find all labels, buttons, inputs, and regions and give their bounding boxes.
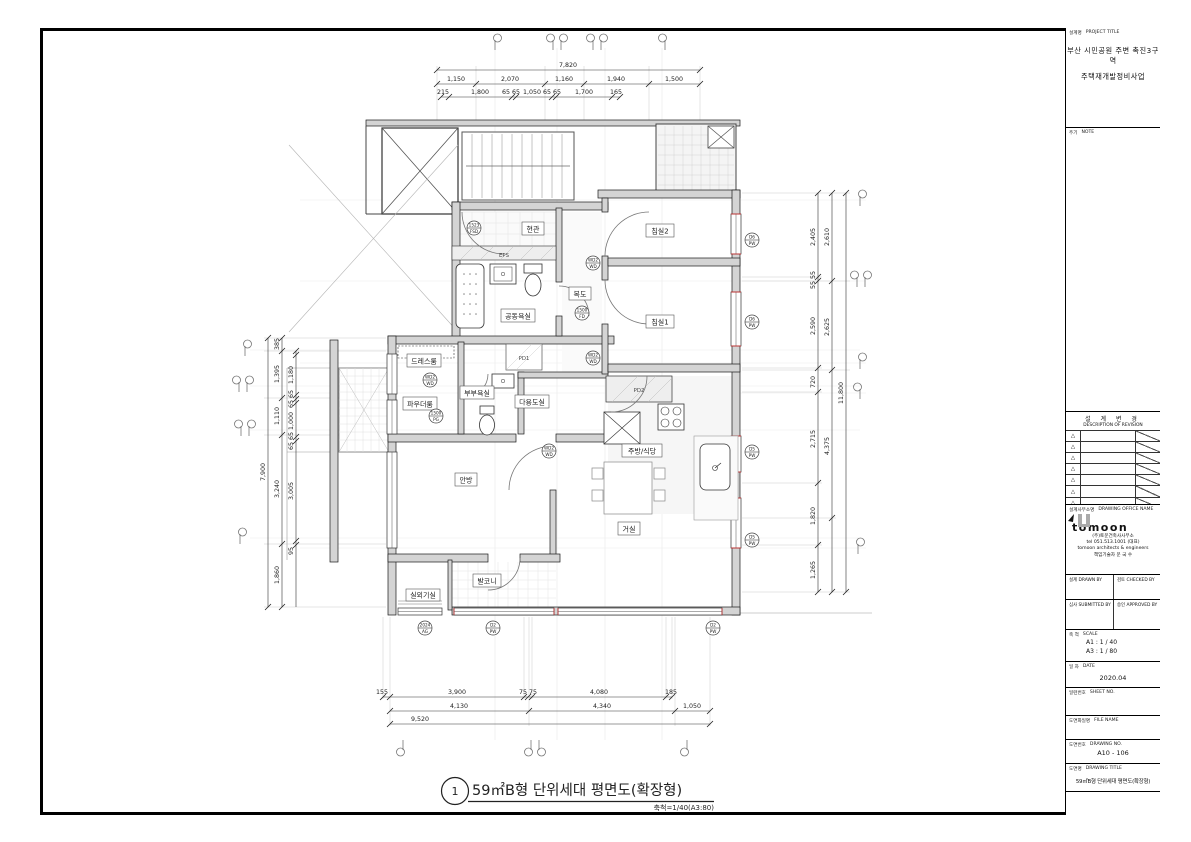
revision-section: 설 계 변 경 DESCRIPTION OF REVISION △ △ △ △ … — [1066, 412, 1160, 505]
revision-row: △ — [1066, 430, 1160, 441]
drawing-title-value: 59㎡B형 단위세대 평면도(확장형) — [1066, 777, 1160, 785]
revision-hatch — [1135, 431, 1160, 441]
submitted-by-cell: 심사 SUBMITTED BY — [1066, 600, 1113, 629]
note-label: 주기 — [1069, 130, 1077, 136]
submitted-approved-section: 심사 SUBMITTED BY 승인 APPROVED BY — [1066, 600, 1160, 630]
revision-hatch — [1135, 475, 1160, 485]
note-label-en: NOTE — [1081, 130, 1094, 136]
project-label-en: PROJECT TITLE — [1086, 30, 1120, 36]
sheet-no-label-en: SHEET NO. — [1090, 690, 1115, 696]
revision-marker: △ — [1066, 475, 1081, 485]
approved-by-cell: 승인 APPROVED BY — [1113, 600, 1160, 629]
scale-section: 축 척SCALE A1 : 1 / 40 A3 : 1 / 80 — [1066, 630, 1160, 662]
revision-row: △ — [1066, 463, 1160, 474]
file-name-label: 도면화일명 — [1069, 718, 1090, 724]
revision-hatch — [1135, 453, 1160, 463]
revision-row: △ — [1066, 441, 1160, 452]
date-label-en: DATE — [1083, 664, 1095, 670]
revision-marker: △ — [1066, 464, 1081, 474]
drawing-no-value: A10 - 106 — [1066, 749, 1160, 757]
checked-by-cell: 검토 CHECKED BY — [1113, 575, 1160, 599]
drawing-title-label: 도면명 — [1069, 766, 1082, 772]
drawing-no-section: 도면번호DRAWING NO. A10 - 106 — [1066, 740, 1160, 764]
note-section: 주기NOTE — [1066, 128, 1160, 412]
sheet-no-section: 일련번호SHEET NO. — [1066, 688, 1160, 716]
sheet-no-label: 일련번호 — [1069, 690, 1086, 696]
date-label: 일 자 — [1069, 664, 1079, 670]
revision-label: 설 계 변 경 — [1066, 414, 1160, 423]
empty-section — [1066, 792, 1160, 815]
revision-row: △ — [1066, 474, 1160, 485]
revision-marker: △ — [1066, 453, 1081, 463]
date-value: 2020.04 — [1066, 674, 1160, 682]
date-section: 일 자DATE 2020.04 — [1066, 662, 1160, 688]
revision-label-en: DESCRIPTION OF REVISION — [1066, 423, 1160, 428]
project-line1: 부산 시민공원 주변 촉진3구역 — [1066, 46, 1160, 66]
project-label: 설계명 — [1069, 30, 1082, 36]
scale-label: 축 척 — [1069, 632, 1079, 638]
revision-row: △ — [1066, 452, 1160, 463]
drawing-title-section: 도면명DRAWING TITLE 59㎡B형 단위세대 평면도(확장형) — [1066, 764, 1160, 792]
project-line2: 주택재개발정비사업 — [1066, 72, 1160, 82]
revision-row: △ — [1066, 485, 1160, 496]
revision-marker: △ — [1066, 486, 1081, 496]
revision-row: △ — [1066, 497, 1160, 505]
drawn-by-cell: 설계 DRAWN BY — [1066, 575, 1113, 599]
revision-hatch — [1135, 464, 1160, 474]
revision-hatch — [1135, 498, 1160, 505]
revision-hatch — [1135, 486, 1160, 496]
office-label-en: DRAWING OFFICE NAME — [1098, 507, 1153, 513]
scale-a3: A3 : 1 / 80 — [1066, 647, 1160, 656]
title-block: 설계명PROJECT TITLE 부산 시민공원 주변 촉진3구역 주택재개발정… — [1065, 28, 1160, 815]
revision-marker: △ — [1066, 431, 1081, 441]
revision-marker: △ — [1066, 498, 1081, 505]
revision-hatch — [1135, 442, 1160, 452]
revision-marker: △ — [1066, 442, 1081, 452]
drawing-sheet: 현관 EPS 공동욕실 복도 침실2 침실1 드레스룸 파우더룸 부부욕실 다용… — [0, 0, 1191, 842]
file-name-label-en: FILE NAME — [1094, 718, 1118, 724]
office-sub: tomoon architects & engineers — [1066, 546, 1160, 552]
tomoon-logo-icon — [1066, 513, 1096, 529]
drawing-title-label-en: DRAWING TITLE — [1086, 766, 1122, 772]
office-engineer: 책임기술자 문 국 수 — [1066, 553, 1160, 559]
drawing-no-label-en: DRAWING NO. — [1090, 742, 1122, 748]
scale-a1: A1 : 1 / 40 — [1066, 638, 1160, 647]
sheet-border — [40, 28, 1160, 815]
drawing-no-label: 도면번호 — [1069, 742, 1086, 748]
file-name-section: 도면화일명FILE NAME — [1066, 716, 1160, 740]
drawn-checked-section: 설계 DRAWN BY 검토 CHECKED BY — [1066, 575, 1160, 600]
project-title-section: 설계명PROJECT TITLE 부산 시민공원 주변 촉진3구역 주택재개발정… — [1066, 28, 1160, 128]
office-section: 설계사무소명DRAWING OFFICE NAME tomoon (주)토문건축… — [1066, 505, 1160, 575]
